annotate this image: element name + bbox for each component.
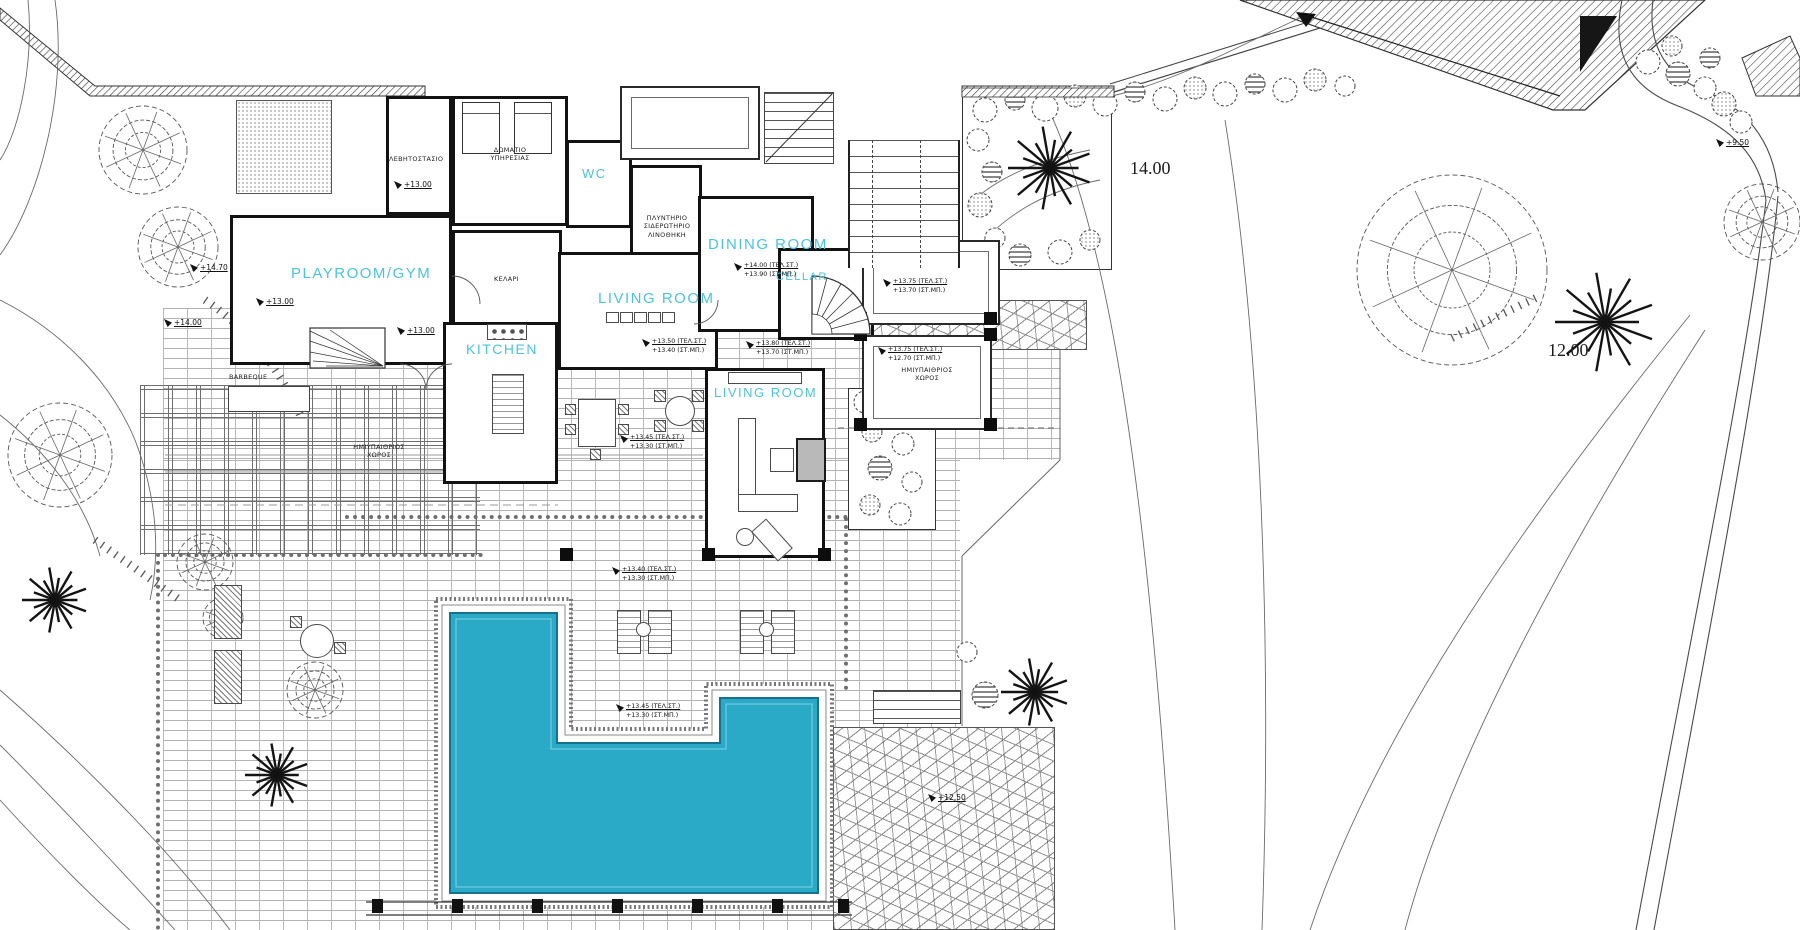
label-cellar-room: ΚΕΛΑΡΙ: [494, 275, 519, 283]
sofa-seat: [606, 312, 619, 323]
sideboard: [728, 372, 802, 384]
fireplace: [796, 438, 826, 482]
elevation-pair-semi-open-e: +13.75 (ΤΕΛ.ΣΤ.)+12.70 (ΣΤ.ΜΠ.): [888, 346, 942, 363]
contour-label-12: 12.00: [1548, 340, 1589, 361]
elevation-pair-hall: +13.80 (ΤΕΛ.ΣΤ.)+13.70 (ΣΤ.ΜΠ.): [756, 340, 810, 357]
sun-lounger: [648, 610, 672, 654]
elevation-pair-terrace-ne: +13.75 (ΤΕΛ.ΣΤ.)+13.70 (ΣΤ.ΜΠ.): [893, 278, 947, 295]
contour-label-14: 14.00: [1130, 158, 1171, 179]
chair: [565, 424, 576, 435]
dining-table: [578, 399, 616, 447]
chair: [654, 420, 666, 432]
chair: [654, 390, 666, 402]
elevation-pair-pool-deck-s: +13.45 (ΤΕΛ.ΣΤ.)+13.30 (ΣΤ.ΜΠ.): [626, 703, 680, 720]
label-semi-open-w: ΗΜΙΥΠΑΙΘΡΙΟΣΧΩΡΟΣ: [336, 443, 422, 460]
label-barbeque: BARBEQUE: [229, 373, 267, 381]
stair-fan: [310, 328, 385, 368]
chair: [618, 424, 629, 435]
round-table: [665, 396, 695, 426]
chair: [590, 449, 601, 460]
sun-lounger: [771, 610, 795, 654]
label-playroom-gym: PLAYROOM/GYM: [291, 265, 431, 282]
side-table: [636, 622, 651, 637]
l-sofa: [738, 494, 798, 512]
chair: [692, 390, 704, 402]
sofa-seat: [620, 312, 633, 323]
steps-diagonal: [766, 94, 832, 162]
chair: [290, 616, 302, 628]
elevation-pair-sitting: +13.45 (ΤΕΛ.ΣΤ.)+13.30 (ΣΤ.ΜΠ.): [630, 434, 684, 451]
spiral-stair: [812, 276, 870, 334]
elevation-marker: +13.00: [407, 326, 435, 335]
label-semi-open-e: ΗΜΙΥΠΑΙΘΡΙΟΣΧΩΡΟΣ: [884, 366, 970, 383]
planter: [214, 650, 242, 704]
bed-ne-hatch-band: [962, 88, 1114, 97]
sofa-seat: [662, 312, 675, 323]
elevation-pair-pool-deck-n: +13.40 (ΤΕΛ.ΣΤ.)+13.30 (ΣΤ.ΜΠ.): [622, 566, 676, 583]
elevation-marker: +13.00: [266, 297, 294, 306]
elevation-marker: +9.50: [1726, 138, 1749, 147]
label-service-room: ΔΩΜΑΤΙΟΥΠΗΡΕΣΙΑΣ: [468, 146, 552, 163]
sofa-seat: [634, 312, 647, 323]
label-kitchen: KITCHEN: [466, 341, 538, 357]
stove: [487, 324, 527, 340]
side-table: [759, 622, 774, 637]
label-dining-room: DINING ROOM: [708, 236, 828, 253]
chair: [334, 642, 346, 654]
label-laundry: ΠΛΥΝΤΗΡΙΟΣΙΔΕΡΩΤΗΡΙΟΛΙΝΟΘΗΚΗ: [630, 214, 704, 239]
stairs-doors-overlay: [0, 0, 1800, 930]
sofa-seat: [648, 312, 661, 323]
elevation-marker: +12.50: [938, 793, 966, 802]
elevation-marker: +14.00: [174, 318, 202, 327]
elevation-pair-dining: +14.00 (ΤΕΛ.ΣΤ.)+13.90 (ΣΤ.ΜΠ.): [744, 262, 798, 279]
label-living-room-upper: LIVING ROOM: [598, 290, 715, 307]
round-table: [300, 624, 334, 658]
elevation-marker: +14.70: [200, 263, 228, 272]
barbeque-counter: [228, 386, 310, 412]
elevation-marker: +13.00: [404, 180, 432, 189]
kitchen-island: [492, 374, 524, 434]
chair: [618, 404, 629, 415]
label-wc: WC: [582, 166, 607, 181]
planter: [214, 585, 242, 639]
chair: [692, 420, 704, 432]
label-boiler-room: ΛΕΒΗΤΟΣΤΑΣΙΟ: [389, 155, 443, 163]
label-living-room-lower: LIVING ROOM: [714, 385, 817, 400]
elevation-pair-living-upper: +13.50 (ΤΕΛ.ΣΤ.)+13.40 (ΣΤ.ΜΠ.): [652, 338, 706, 355]
site-plan-canvas: PLAYROOM/GYM WC KITCHEN LIVING ROOM DINI…: [0, 0, 1800, 930]
chair: [565, 404, 576, 415]
coffee-table: [770, 448, 794, 472]
l-sofa: [738, 418, 756, 498]
